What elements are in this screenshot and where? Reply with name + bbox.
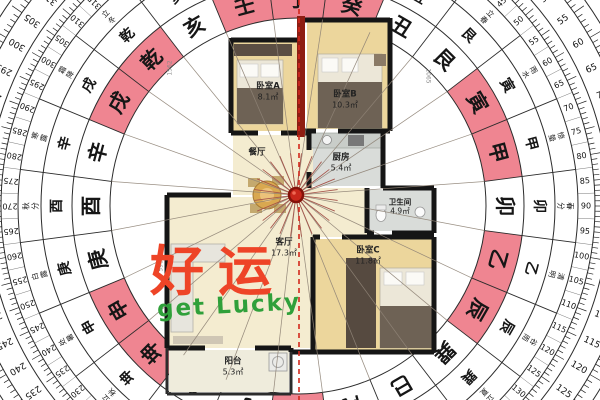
svg-text:酉: 酉	[49, 199, 65, 213]
room-label-bedroom-b: 卧室B 10.3㎡	[332, 90, 358, 111]
svg-text:春: 春	[566, 202, 576, 210]
svg-text:95: 95	[579, 226, 590, 236]
room-label-bedroom-a: 卧室A 8.1㎡	[256, 82, 280, 103]
svg-text:270: 270	[2, 202, 17, 211]
svg-text:分: 分	[31, 202, 40, 210]
svg-text:卯: 卯	[493, 196, 517, 217]
room-label-bathroom: 卫生间 4.9㎡	[389, 198, 412, 217]
svg-text:85: 85	[579, 176, 590, 186]
room-label-kitchen: 厨房 5.4㎡	[331, 153, 352, 174]
watermark-chinese: 好运	[150, 244, 286, 298]
svg-text:1065: 1065	[425, 68, 432, 83]
luopan-floorplan-image: 0055101015152020252530303535404045455050…	[0, 0, 600, 400]
svg-text:酉: 酉	[79, 196, 103, 217]
svg-text:80: 80	[576, 151, 588, 162]
svg-text:90: 90	[581, 202, 591, 211]
svg-text:275: 275	[3, 176, 19, 186]
svg-text:分: 分	[557, 202, 566, 210]
svg-text:卯: 卯	[531, 199, 547, 213]
compass-center-marker	[289, 188, 303, 202]
svg-text:秋: 秋	[21, 202, 31, 210]
svg-text:子: 子	[288, 0, 309, 11]
room-label-bedroom-c: 卧室C 11.8㎡	[355, 246, 381, 267]
svg-text:265: 265	[3, 226, 19, 236]
room-label-dining: 餐厅	[248, 148, 265, 159]
svg-text:1562: 1562	[167, 60, 174, 75]
luopan-compass-graphic: 0055101015152020252530303535404045455050…	[0, 0, 600, 400]
room-label-balcony: 阳台 5.3㎡	[223, 357, 244, 378]
